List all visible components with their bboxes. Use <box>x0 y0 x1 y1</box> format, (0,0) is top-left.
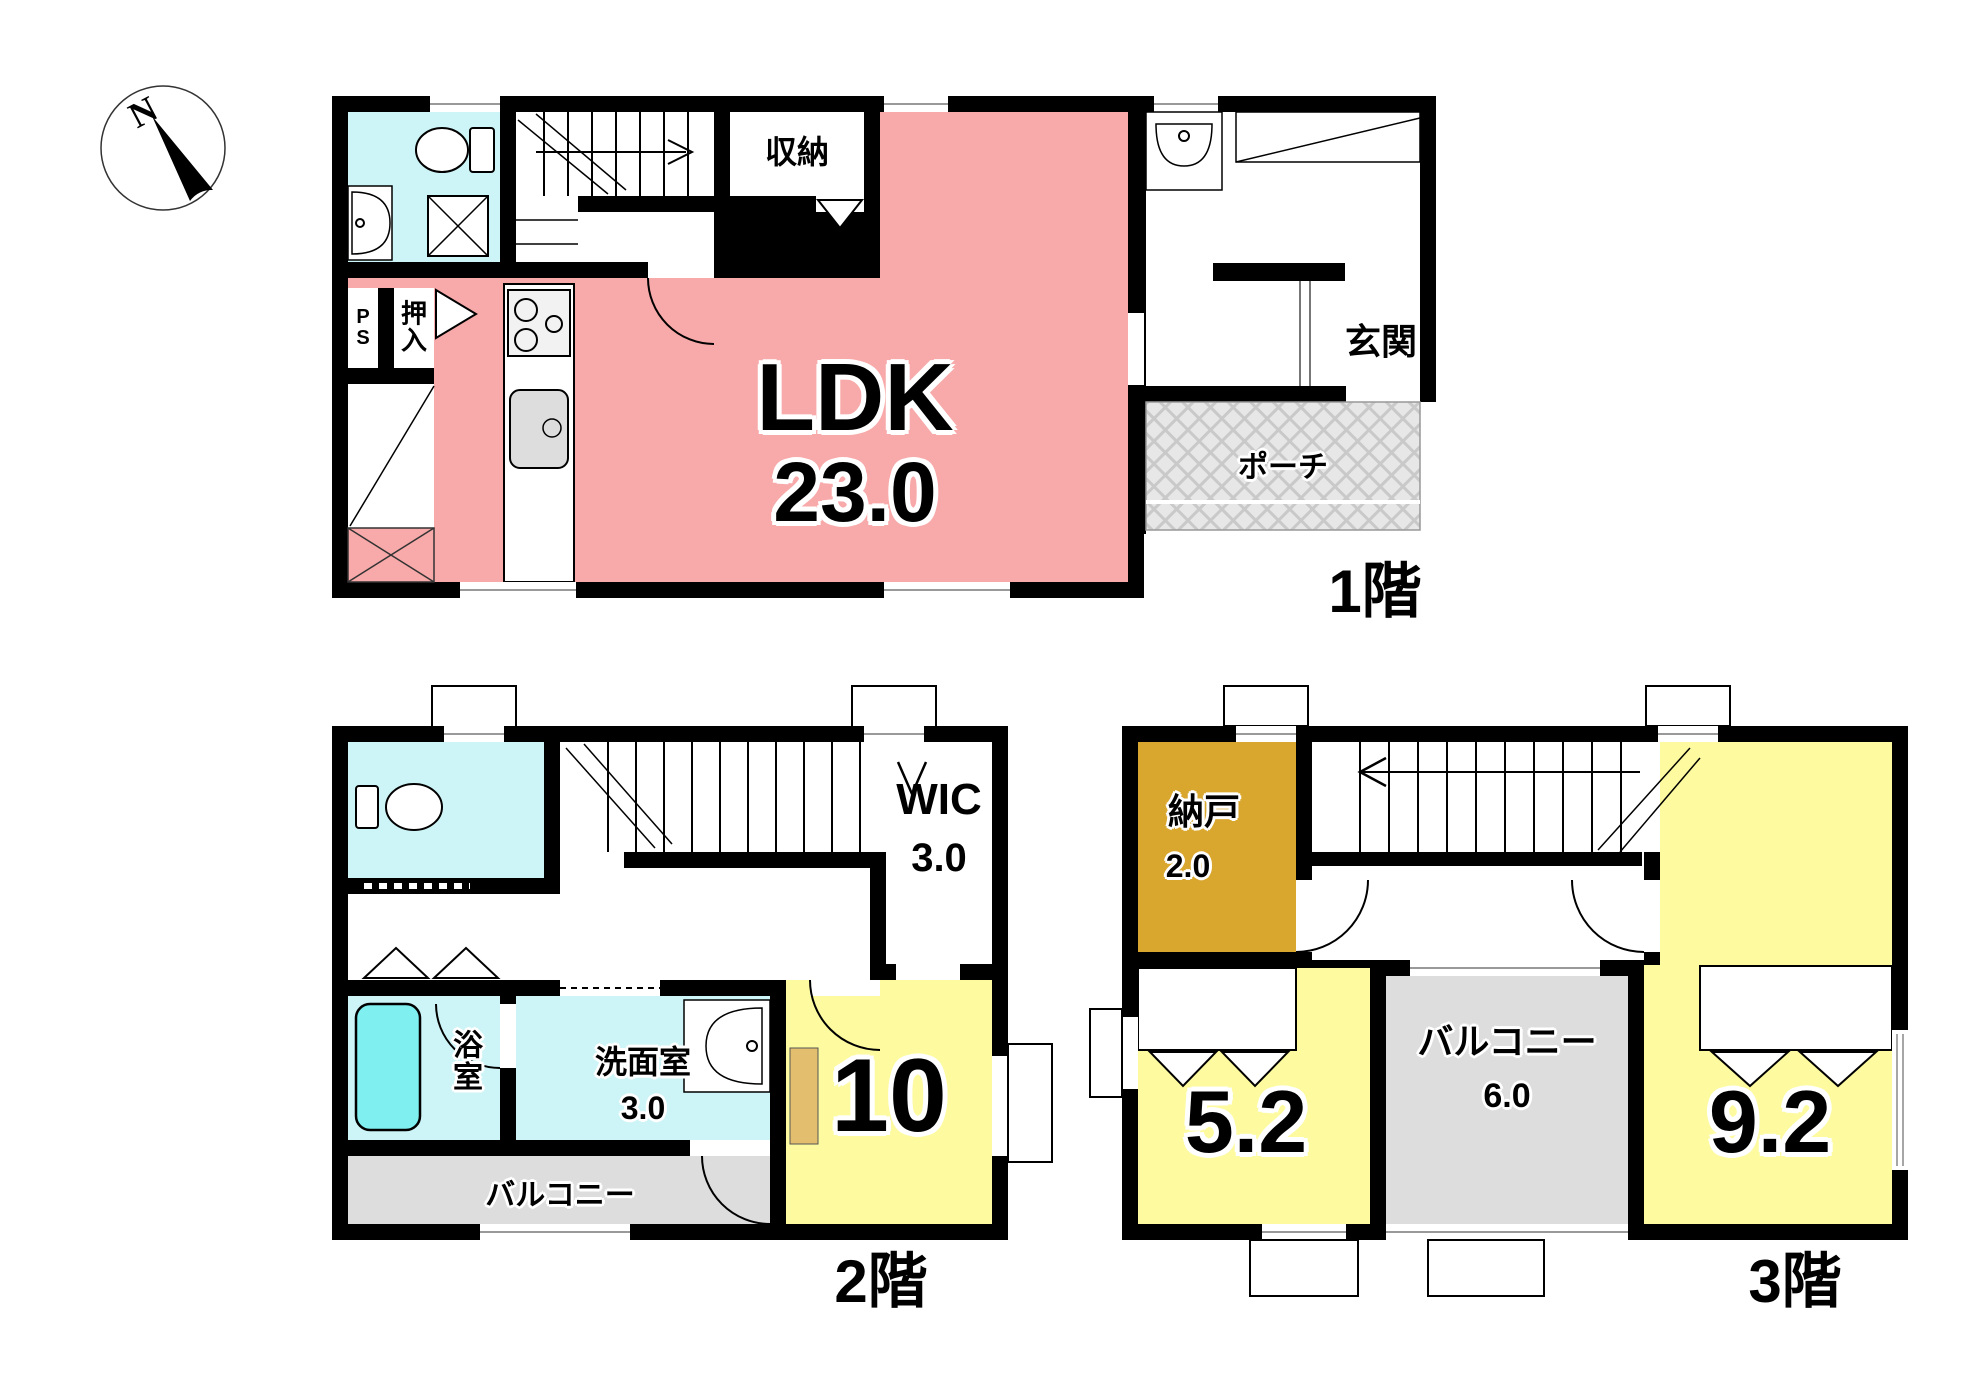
label-balcony-3f: バルコニー <box>1417 1024 1596 1060</box>
label-ps: PS <box>352 307 374 349</box>
plan-2f <box>332 686 1052 1240</box>
desk-counter <box>790 1048 818 1144</box>
washbasin-icon-2f <box>684 1000 770 1092</box>
label-ldk-size: 23.0 <box>773 450 937 534</box>
label-bedroom-10: 10 <box>831 1044 947 1148</box>
closet-52 <box>1138 968 1296 1050</box>
hall-3f <box>1312 852 1644 960</box>
label-washroom-size: 3.0 <box>621 1092 665 1124</box>
label-ldk: LDK <box>756 350 953 446</box>
washbasin-icon-1f <box>348 186 392 260</box>
floorplan-page: N 収納 PS 押入 LDK 23.0 玄関 ポーチ 1階 WIC 3.0 浴室… <box>0 0 1972 1382</box>
label-washroom: 洗面室 <box>595 1046 691 1078</box>
label-wic-size: 3.0 <box>911 838 967 878</box>
label-bedroom-52: 5.2 <box>1185 1078 1307 1166</box>
chimney-bump <box>1646 686 1730 726</box>
label-wic: WIC <box>896 778 982 822</box>
floorplan-canvas <box>0 0 1972 1382</box>
label-balcony-2f: バルコニー <box>485 1181 634 1211</box>
label-floor-2: 2階 <box>834 1252 927 1312</box>
label-nando: 納戸 <box>1168 794 1240 830</box>
label-bathroom: 浴室 <box>452 1031 484 1094</box>
label-nando-size: 2.0 <box>1166 850 1210 882</box>
plan-3f <box>1090 686 1908 1296</box>
label-genkan: 玄関 <box>1345 324 1417 360</box>
compass <box>101 86 225 210</box>
label-oshiire: 押入 <box>400 301 428 356</box>
toilet-icon-2f <box>356 784 442 830</box>
chimney-bump <box>1224 686 1308 726</box>
label-balcony-3f-size: 6.0 <box>1483 1079 1530 1113</box>
bathtub-icon <box>356 1004 420 1130</box>
label-storage: 収納 <box>765 136 829 168</box>
closet-92 <box>1700 966 1892 1050</box>
room-bedroom-92-upper <box>1660 742 1892 965</box>
label-floor-3: 3階 <box>1748 1252 1841 1312</box>
bay-window-bump <box>1008 1044 1052 1162</box>
shoe-cabinet-icon <box>1236 112 1420 162</box>
room-ldk <box>348 278 1128 582</box>
room-nando <box>1138 742 1296 952</box>
toilet-icon-1f <box>416 128 494 172</box>
laundry-pan-icon <box>428 196 488 256</box>
balcony-lower-bump <box>1428 1240 1544 1296</box>
corridor-2f <box>348 894 870 980</box>
window-bump <box>1250 1240 1358 1296</box>
label-floor-1: 1階 <box>1328 562 1421 622</box>
chimney-bump <box>432 686 516 730</box>
label-porch: ポーチ <box>1238 453 1328 483</box>
chimney-bump <box>852 686 936 730</box>
kitchen-counter <box>504 284 574 582</box>
bay-window-bump <box>1090 1009 1122 1097</box>
label-bedroom-92: 9.2 <box>1709 1078 1831 1166</box>
washbasin-icon-genkan <box>1146 112 1222 190</box>
